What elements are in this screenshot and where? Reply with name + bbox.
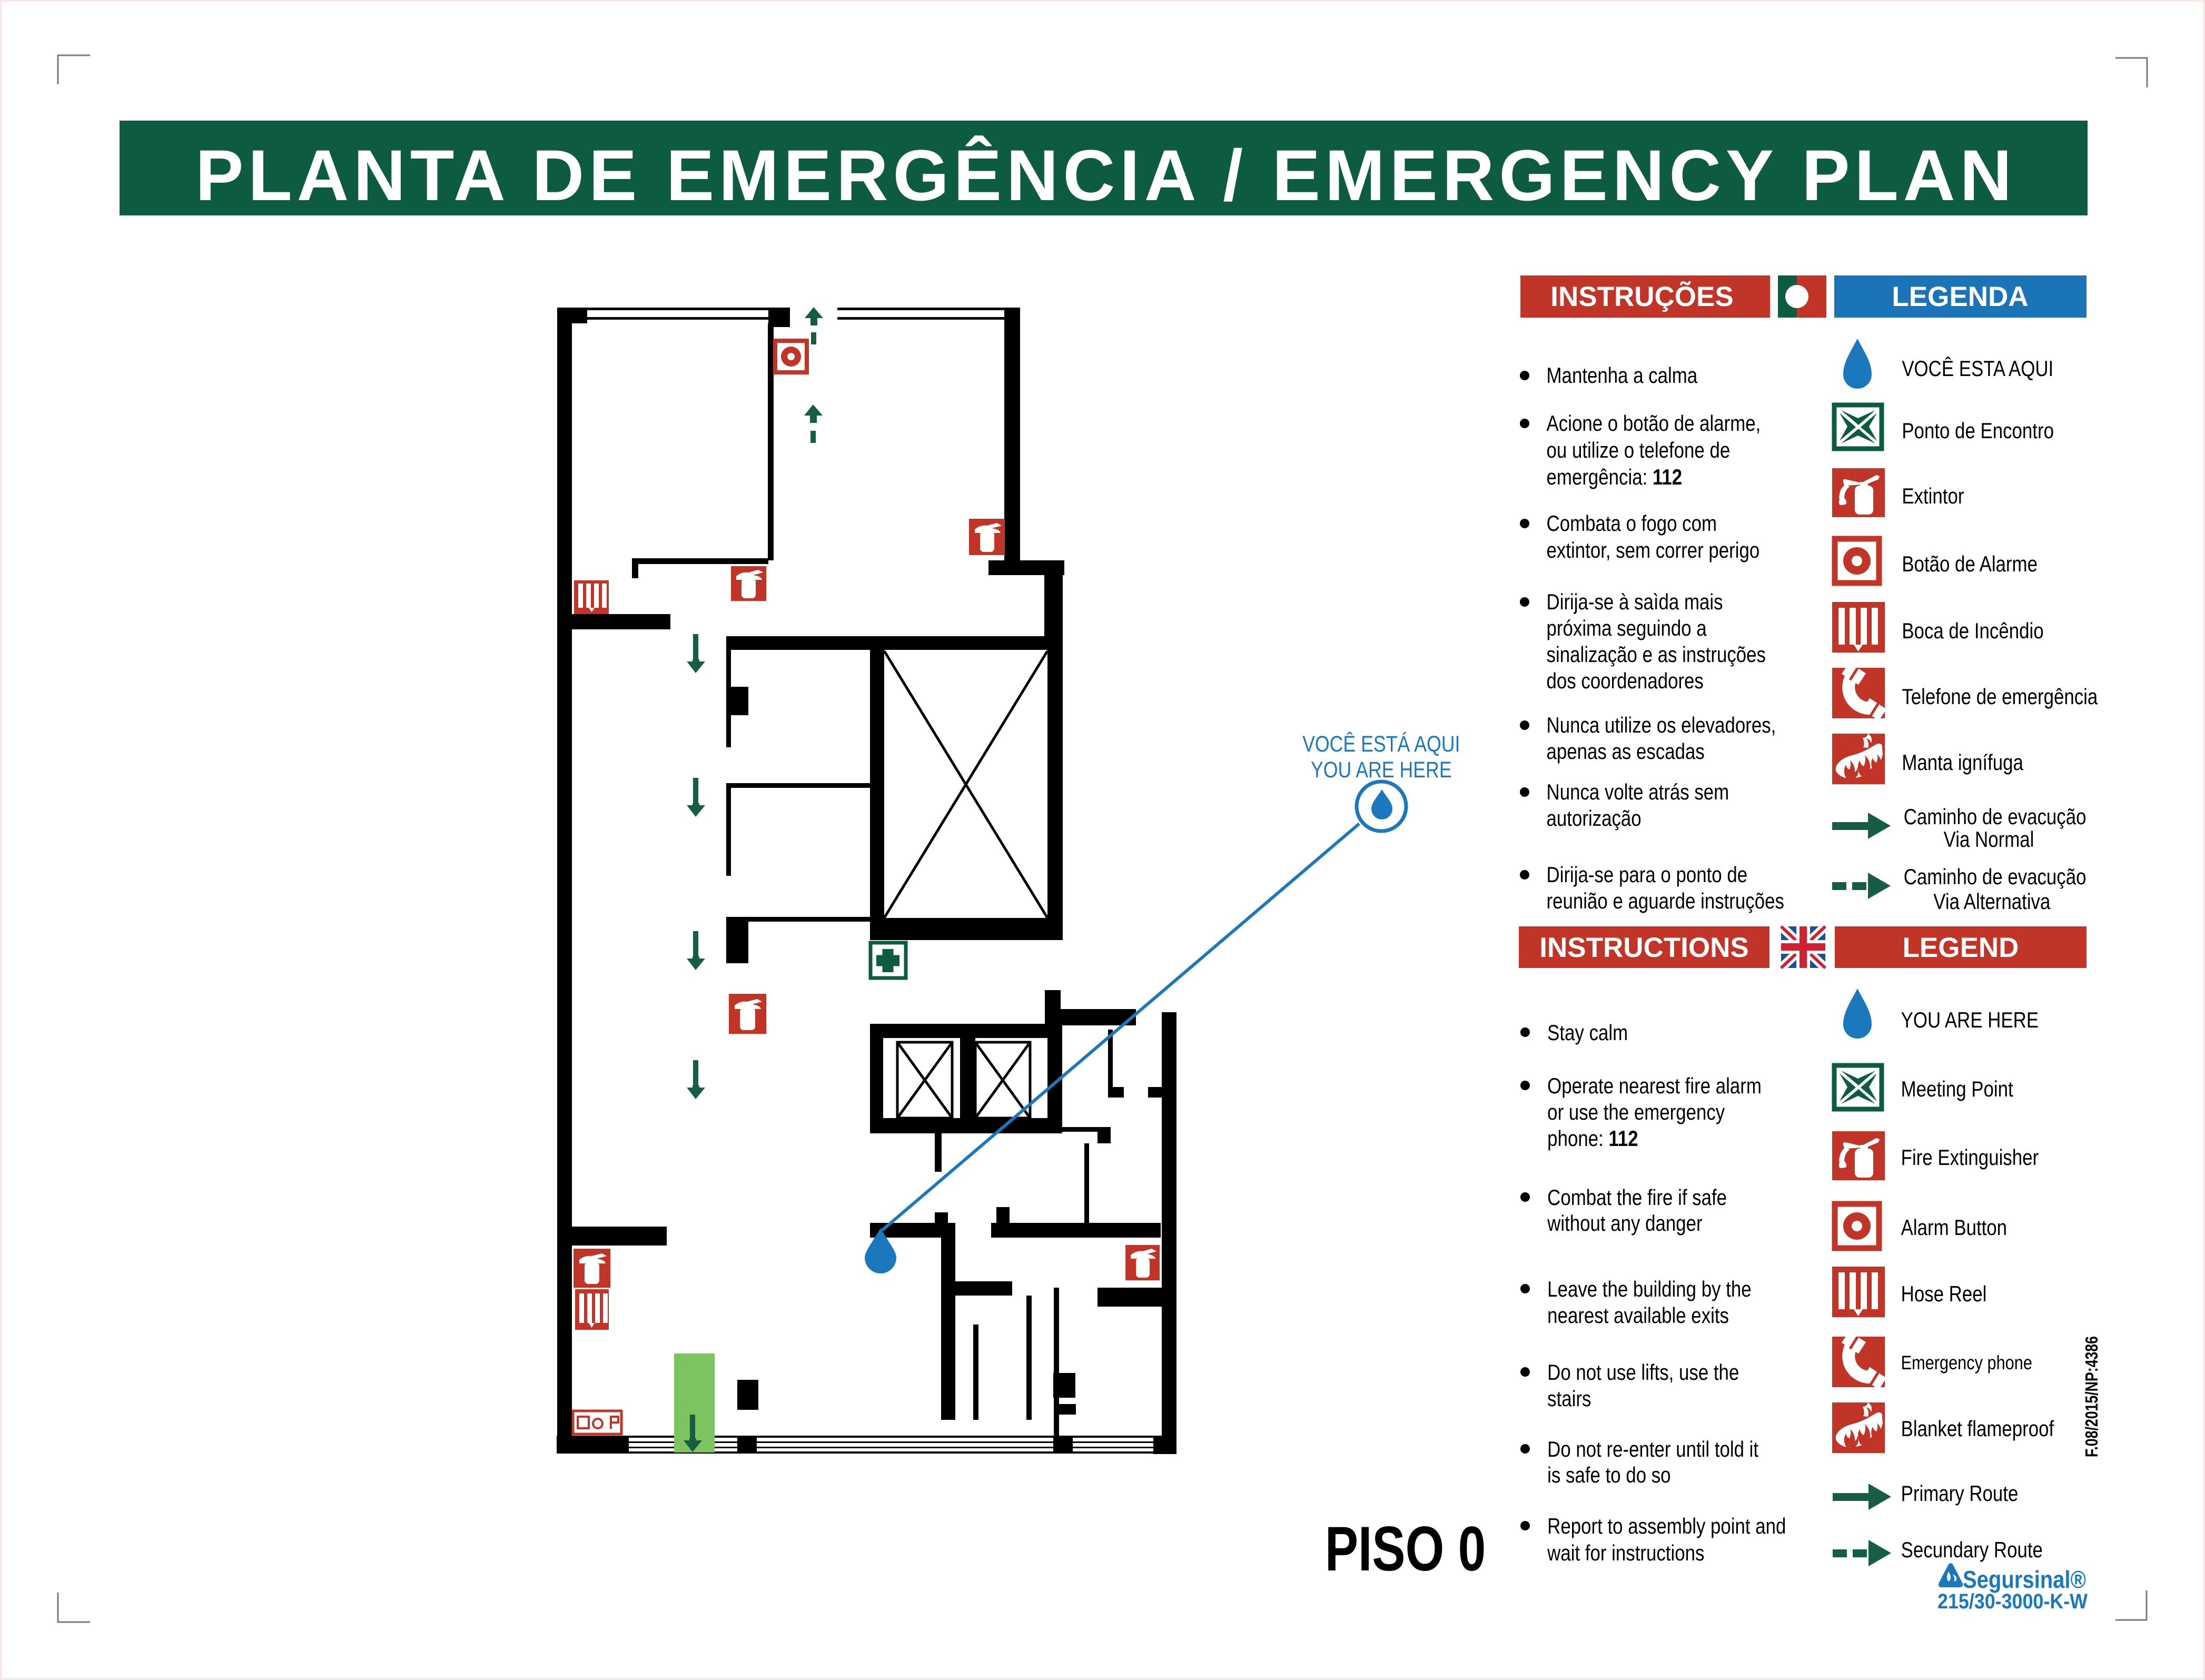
svg-text:Nunca volte atrás sem: Nunca volte atrás sem	[1547, 780, 1729, 805]
svg-text:Do not re-enter until told it: Do not re-enter until told it	[1547, 1437, 1758, 1462]
svg-text:phone: 112: phone: 112	[1547, 1126, 1638, 1151]
svg-text:LEGEND: LEGEND	[1903, 932, 2019, 963]
svg-text:Ponto de Encontro: Ponto de Encontro	[1902, 419, 2054, 443]
svg-text:Secundary Route: Secundary Route	[1901, 1538, 2043, 1563]
svg-text:extintor, sem correr perigo: extintor, sem correr perigo	[1547, 538, 1760, 563]
svg-text:Emergency phone: Emergency phone	[1901, 1352, 2032, 1373]
svg-text:Fire Extinguisher: Fire Extinguisher	[1901, 1145, 2039, 1170]
svg-text:Via Normal: Via Normal	[1944, 827, 2034, 852]
svg-text:dos coordenadores: dos coordenadores	[1547, 669, 1704, 694]
svg-text:Stay calm: Stay calm	[1547, 1021, 1628, 1045]
svg-text:Leave the building by the: Leave the building by the	[1547, 1277, 1751, 1302]
svg-text:YOU ARE HERE: YOU ARE HERE	[1901, 1008, 2039, 1033]
svg-text:Caminho de evacução: Caminho de evacução	[1904, 805, 2087, 829]
svg-text:215/30-3000-K-W: 215/30-3000-K-W	[1937, 1590, 2088, 1613]
svg-text:LEGENDA: LEGENDA	[1892, 281, 2028, 312]
svg-text:próxima seguindo a: próxima seguindo a	[1547, 616, 1707, 641]
svg-text:INSTRUCTIONS: INSTRUCTIONS	[1539, 932, 1749, 963]
svg-text:autorização: autorização	[1547, 806, 1642, 831]
svg-text:ou utilize o telefone de: ou utilize o telefone de	[1547, 438, 1731, 463]
svg-text:Report to assembly point and: Report to assembly point and	[1547, 1514, 1786, 1539]
svg-text:Manta ignífuga: Manta ignífuga	[1902, 750, 2023, 775]
svg-text:Telefone de emergência: Telefone de emergência	[1902, 685, 2098, 709]
svg-text:Do not use lifts, use the: Do not use lifts, use the	[1547, 1360, 1739, 1385]
svg-text:INSTRUÇÕES: INSTRUÇÕES	[1550, 281, 1733, 312]
svg-text:Caminho de evacução: Caminho de evacução	[1904, 865, 2087, 890]
svg-text:Hose Reel: Hose Reel	[1901, 1282, 1987, 1307]
svg-text:Primary Route: Primary Route	[1901, 1481, 2019, 1506]
svg-text:Mantenha a calma: Mantenha a calma	[1547, 363, 1698, 388]
svg-text:Extintor: Extintor	[1902, 484, 1964, 509]
svg-text:VOCÊ ESTA AQUI: VOCÊ ESTA AQUI	[1902, 357, 2053, 381]
svg-text:Blanket flameproof: Blanket flameproof	[1901, 1417, 2054, 1441]
svg-text:sinalização e as instruções: sinalização e as instruções	[1547, 643, 1766, 667]
svg-text:Boca de Incêndio: Boca de Incêndio	[1902, 619, 2043, 644]
svg-text:VOCÊ ESTÁ AQUI: VOCÊ ESTÁ AQUI	[1302, 732, 1460, 757]
svg-text:Nunca utilize os elevadores,: Nunca utilize os elevadores,	[1547, 713, 1776, 738]
svg-text:Acione o botão de alarme,: Acione o botão de alarme,	[1547, 411, 1761, 436]
svg-text:wait for instructions: wait for instructions	[1547, 1541, 1704, 1566]
svg-text:Operate nearest fire alarm: Operate nearest fire alarm	[1547, 1074, 1762, 1099]
svg-text:without any danger: without any danger	[1547, 1211, 1702, 1236]
svg-text:Botão de Alarme: Botão de Alarme	[1902, 552, 2038, 577]
svg-text:is safe to do so: is safe to do so	[1547, 1463, 1670, 1488]
svg-text:YOU ARE HERE: YOU ARE HERE	[1311, 757, 1452, 783]
svg-text:Meeting Point: Meeting Point	[1901, 1077, 2013, 1102]
svg-text:Alarm Button: Alarm Button	[1901, 1215, 2007, 1240]
svg-text:Dirija-se para o ponto de: Dirija-se para o ponto de	[1547, 863, 1748, 887]
svg-text:PLANTA DE EMERGÊNCIA / EMERGEN: PLANTA DE EMERGÊNCIA / EMERGENCY PLAN	[195, 135, 2016, 216]
svg-text:Via Alternativa: Via Alternativa	[1933, 890, 2051, 914]
svg-text:reunião e aguarde instruções: reunião e aguarde instruções	[1547, 889, 1784, 914]
svg-text:F.08/2015/NP:4386: F.08/2015/NP:4386	[2082, 1336, 2101, 1457]
svg-text:Segursinal®: Segursinal®	[1963, 1566, 2086, 1593]
svg-text:or use the emergency: or use the emergency	[1547, 1100, 1725, 1125]
svg-text:PISO 0: PISO 0	[1325, 1513, 1486, 1584]
svg-text:emergência: 112: emergência: 112	[1547, 465, 1683, 490]
svg-text:apenas as escadas: apenas as escadas	[1547, 739, 1705, 764]
svg-text:nearest available exits: nearest available exits	[1547, 1303, 1729, 1328]
svg-text:stairs: stairs	[1547, 1387, 1591, 1411]
svg-text:Combata o fogo com: Combata o fogo com	[1547, 511, 1717, 536]
svg-text:Combat the fire if safe: Combat the fire if safe	[1547, 1185, 1727, 1210]
svg-text:Dirija-se à saìda mais: Dirija-se à saìda mais	[1547, 590, 1723, 615]
